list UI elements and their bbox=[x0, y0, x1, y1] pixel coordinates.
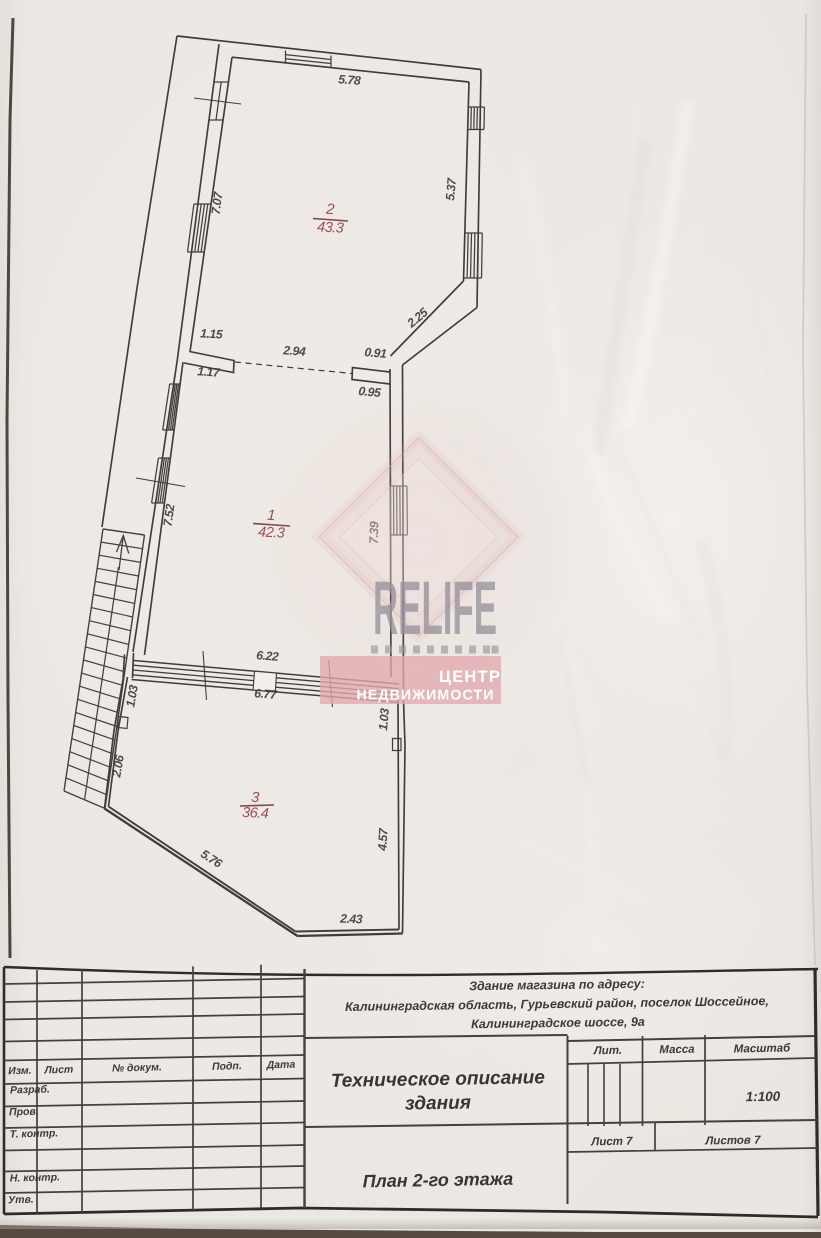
svg-text:5.37: 5.37 bbox=[443, 176, 459, 201]
svg-text:Лист 7: Лист 7 bbox=[590, 1136, 633, 1149]
svg-text:RELIFE: RELIFE bbox=[373, 566, 497, 651]
svg-text:7.07: 7.07 bbox=[209, 190, 226, 215]
svg-text:0.91: 0.91 bbox=[364, 345, 388, 361]
svg-text:36.4: 36.4 bbox=[242, 805, 269, 822]
svg-text:Дата: Дата bbox=[265, 1059, 295, 1072]
svg-text:43.3: 43.3 bbox=[317, 219, 344, 236]
svg-text:здания: здания bbox=[405, 1092, 471, 1114]
svg-text:ЦЕНТР: ЦЕНТР bbox=[439, 668, 501, 686]
svg-text:№ докум.: № докум. bbox=[112, 1061, 162, 1074]
svg-text:Масштаб: Масштаб bbox=[734, 1042, 792, 1055]
svg-text:2: 2 bbox=[325, 201, 336, 219]
svg-text:Т. контр.: Т. контр. bbox=[9, 1127, 58, 1140]
svg-text:Утв.: Утв. bbox=[8, 1194, 34, 1207]
svg-text:Изм.: Изм. bbox=[8, 1065, 32, 1078]
svg-text:Разраб.: Разраб. bbox=[10, 1083, 50, 1096]
svg-text:1:100: 1:100 bbox=[746, 1089, 781, 1105]
svg-text:Подп.: Подп. bbox=[212, 1060, 242, 1073]
svg-text:Калининградское шоссе, 9а: Калининградское шоссе, 9а bbox=[471, 1015, 645, 1031]
svg-text:Листов 7: Листов 7 bbox=[704, 1135, 761, 1148]
svg-text:Пров.: Пров. bbox=[9, 1106, 39, 1119]
svg-text:3: 3 bbox=[251, 790, 260, 806]
svg-text:Н. контр.: Н. контр. bbox=[10, 1171, 61, 1184]
svg-text:Техническое описание: Техническое описание bbox=[331, 1067, 546, 1092]
svg-text:1.03: 1.03 bbox=[376, 707, 392, 731]
svg-text:1.17: 1.17 bbox=[197, 364, 222, 380]
svg-text:Здание магазина по адресу:: Здание магазина по адресу: bbox=[469, 977, 645, 993]
svg-text:Лист: Лист bbox=[43, 1064, 73, 1077]
svg-text:Масса: Масса bbox=[659, 1044, 695, 1057]
svg-text:2.94: 2.94 bbox=[282, 343, 307, 359]
svg-text:НЕДВИЖИМОСТИ: НЕДВИЖИМОСТИ bbox=[356, 688, 494, 704]
svg-text:План 2-го этажа: План 2-го этажа bbox=[362, 1169, 513, 1192]
svg-text:5.78: 5.78 bbox=[338, 72, 362, 88]
svg-text:4.57: 4.57 bbox=[375, 827, 390, 852]
svg-text:6.77: 6.77 bbox=[254, 686, 279, 702]
svg-text:6.22: 6.22 bbox=[256, 648, 280, 664]
svg-text:Лит.: Лит. bbox=[593, 1045, 622, 1058]
svg-text:2.43: 2.43 bbox=[339, 912, 363, 927]
svg-text:1.15: 1.15 bbox=[200, 326, 223, 341]
